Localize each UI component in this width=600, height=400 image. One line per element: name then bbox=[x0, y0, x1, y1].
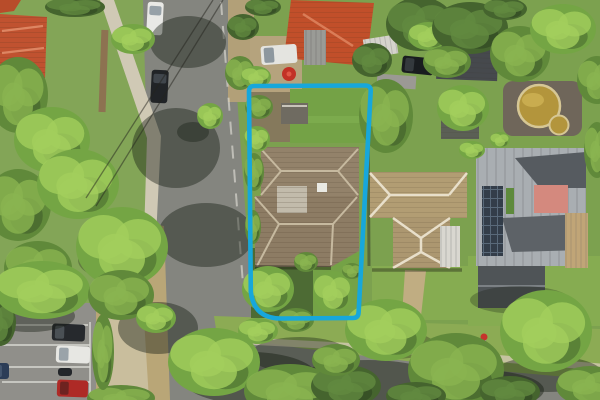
scene-root bbox=[0, 0, 600, 400]
tree-highlight bbox=[2, 82, 25, 111]
tree bbox=[227, 14, 259, 40]
black-car-road bbox=[150, 70, 169, 104]
tree-highlight bbox=[493, 5, 510, 13]
blue-car-edge-windshield bbox=[0, 365, 2, 377]
tree-highlight bbox=[248, 73, 259, 81]
tree-highlight bbox=[434, 57, 452, 69]
blue-car-edge bbox=[0, 363, 9, 379]
white-van bbox=[260, 44, 297, 65]
motorcycle bbox=[58, 368, 72, 376]
red-umbrella-center bbox=[287, 72, 292, 77]
roof-terrace-pink bbox=[534, 185, 568, 213]
tree-highlight bbox=[361, 54, 376, 67]
red-car-parking-lot bbox=[57, 379, 89, 397]
tree bbox=[312, 344, 360, 376]
white-car-road-windshield bbox=[149, 6, 161, 16]
tree-highlight bbox=[450, 19, 479, 39]
street-tree-highlight bbox=[203, 112, 213, 122]
pergola-slats bbox=[277, 186, 307, 213]
tree-highlight bbox=[17, 280, 53, 302]
front-yard-tree-highlight bbox=[347, 268, 355, 274]
tree-highlight bbox=[431, 358, 467, 386]
tree-highlight bbox=[417, 31, 432, 42]
backyard-tree-highlight bbox=[252, 103, 263, 112]
tree-highlight bbox=[494, 387, 517, 399]
tree-highlight bbox=[590, 141, 600, 162]
white-car-parking-lot-windshield bbox=[59, 348, 69, 361]
hedge bbox=[92, 314, 114, 390]
tree bbox=[437, 85, 489, 131]
tree-highlight bbox=[190, 351, 225, 377]
tree-highlight bbox=[449, 100, 469, 117]
tree bbox=[136, 303, 176, 333]
front-yard-tree-highlight bbox=[300, 259, 309, 267]
tree bbox=[459, 141, 485, 159]
backyard-tree bbox=[245, 210, 261, 244]
tree bbox=[500, 290, 592, 372]
tree-highlight bbox=[572, 379, 598, 394]
hedge-strip bbox=[506, 188, 514, 214]
tree-highlight bbox=[504, 45, 527, 66]
tree-highlight bbox=[364, 320, 395, 344]
front-yard-tree-highlight bbox=[322, 285, 337, 301]
tree-highlight bbox=[495, 137, 503, 143]
tree-highlight bbox=[121, 34, 138, 45]
solar-panel-grid bbox=[482, 186, 503, 256]
white-van-windshield bbox=[264, 47, 275, 63]
street-tree bbox=[197, 103, 223, 129]
tree bbox=[111, 24, 155, 54]
tree-highlight bbox=[465, 147, 475, 154]
white-carport-corrugation bbox=[440, 226, 460, 267]
tree-highlight bbox=[1, 193, 26, 220]
tree-highlight bbox=[327, 379, 354, 395]
tree bbox=[37, 149, 119, 219]
tree bbox=[423, 46, 471, 78]
aerial-photo-canvas bbox=[0, 0, 600, 400]
tree-highlight bbox=[546, 21, 571, 40]
tree-highlight bbox=[372, 104, 393, 132]
black-car-ne-windshield bbox=[404, 58, 414, 72]
tree bbox=[352, 43, 392, 77]
aerial-photo bbox=[0, 0, 600, 400]
pool-spa bbox=[550, 116, 569, 135]
tree-highlight bbox=[104, 287, 129, 306]
tree-highlight bbox=[253, 4, 267, 11]
tree-highlight bbox=[247, 327, 262, 337]
tree-highlight bbox=[56, 172, 87, 199]
tree-highlight bbox=[145, 313, 160, 324]
front-yard-tree bbox=[294, 252, 318, 272]
tree-highlight bbox=[323, 355, 341, 367]
tree bbox=[238, 318, 278, 344]
white-car-parking-lot bbox=[56, 345, 91, 363]
tan-carport-corrugation bbox=[565, 213, 588, 268]
tree-highlight bbox=[235, 23, 247, 33]
tree-highlight bbox=[32, 129, 61, 154]
backyard-tree bbox=[244, 153, 264, 191]
tree-shadow bbox=[158, 203, 254, 267]
carport-n-corrugation bbox=[304, 30, 326, 65]
tree-shadow bbox=[150, 16, 226, 68]
pool-highlight bbox=[522, 93, 544, 107]
tree-highlight bbox=[98, 234, 133, 264]
front-yard-tree-highlight bbox=[254, 281, 274, 298]
red-car-parking-lot-windshield bbox=[60, 382, 69, 395]
tree bbox=[490, 132, 510, 148]
tree bbox=[530, 4, 596, 54]
roof-vent bbox=[317, 183, 327, 192]
tree-highlight bbox=[59, 4, 82, 12]
hedge-highlight bbox=[97, 339, 105, 368]
tree-highlight bbox=[522, 317, 557, 348]
